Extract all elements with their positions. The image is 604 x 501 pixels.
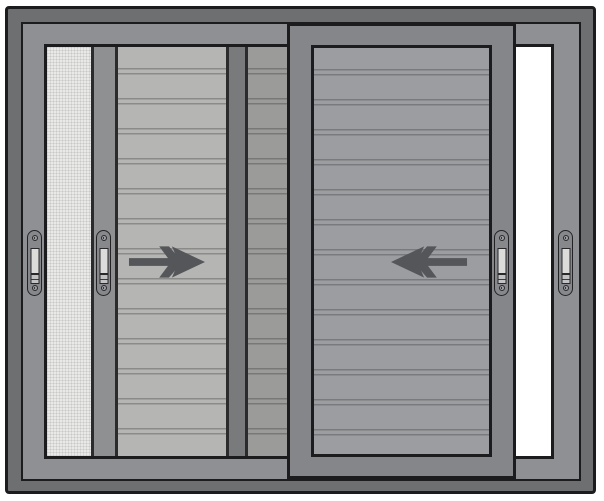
sliding-window-diagram (0, 0, 604, 501)
handle-latch (99, 274, 108, 284)
interlock-stile (229, 47, 245, 456)
handle-plate (561, 248, 570, 274)
screw-icon (101, 235, 107, 241)
handle-latch (497, 274, 506, 284)
frosted-glass-panel (47, 47, 91, 456)
handle-latch (30, 274, 39, 284)
handle-plate (99, 248, 108, 274)
frame-right-handle (558, 230, 573, 296)
screw-icon (499, 285, 505, 291)
screw-icon (101, 285, 107, 291)
handle-plate (497, 248, 506, 274)
slide-right-arrow-icon (128, 245, 206, 279)
open-gap (516, 47, 551, 456)
slide-left-arrow-icon (390, 245, 468, 279)
handle-plate (30, 248, 39, 274)
screw-icon (32, 235, 38, 241)
screw-icon (563, 285, 569, 291)
screw-icon (32, 285, 38, 291)
handle-latch (561, 274, 570, 284)
right-sash-handle (494, 230, 509, 296)
shaded-shutter-panel (248, 47, 287, 456)
frame-left-handle (27, 230, 42, 296)
left-sash-handle (96, 230, 111, 296)
screw-icon (563, 235, 569, 241)
screw-icon (499, 235, 505, 241)
